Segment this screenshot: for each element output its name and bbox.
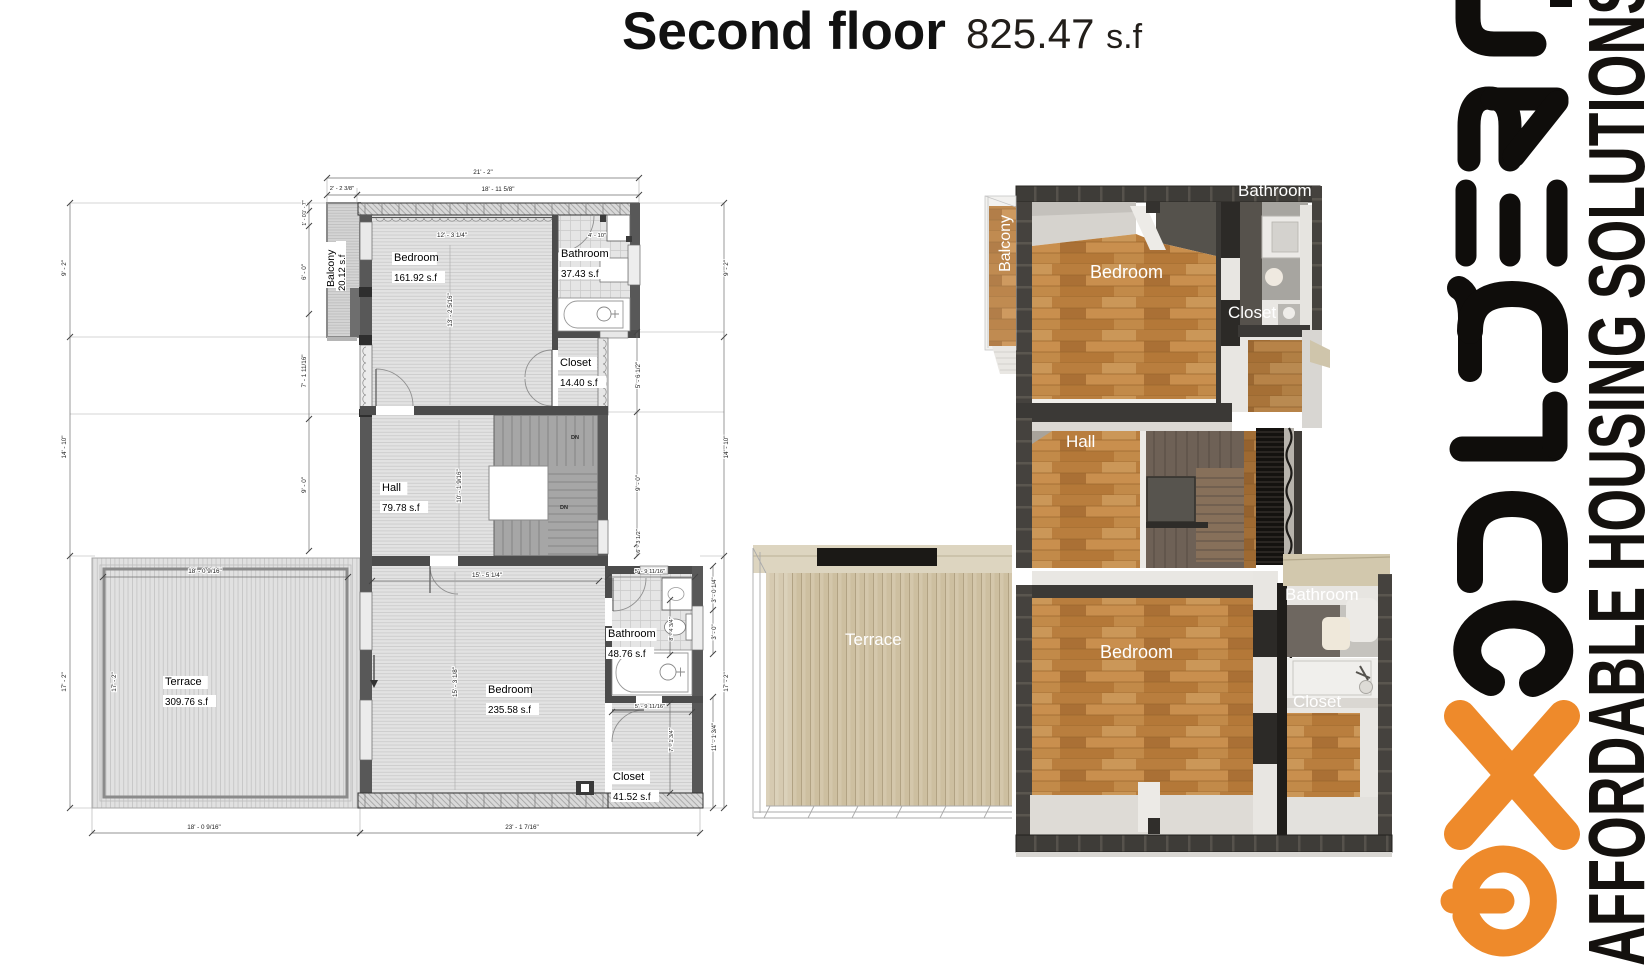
svg-text:Closet: Closet bbox=[560, 357, 591, 369]
svg-text:2' - 2 3/8": 2' - 2 3/8" bbox=[330, 186, 354, 192]
svg-text:10' - 1 9/16": 10' - 1 9/16" bbox=[456, 469, 463, 503]
svg-text:Terrace: Terrace bbox=[165, 676, 202, 688]
svg-text:14' - 10": 14' - 10" bbox=[723, 435, 730, 458]
svg-text:AFFORDABLE HOUSING SOLUTIONS: AFFORDABLE HOUSING SOLUTIONS bbox=[1572, 0, 1646, 966]
svg-text:15' - 5 1/4": 15' - 5 1/4" bbox=[472, 572, 502, 579]
svg-text:6' - 3 1/2": 6' - 3 1/2" bbox=[636, 529, 642, 553]
svg-text:9' - 0": 9' - 0" bbox=[635, 475, 642, 491]
svg-text:Hall: Hall bbox=[1066, 432, 1095, 451]
svg-text:Bedroom: Bedroom bbox=[1100, 642, 1173, 662]
svg-text:Bathroom: Bathroom bbox=[1238, 181, 1312, 200]
svg-text:Balcony: Balcony bbox=[997, 215, 1014, 272]
svg-text:8' - 4 3/4": 8' - 4 3/4" bbox=[669, 617, 675, 641]
svg-text:Bathroom: Bathroom bbox=[608, 628, 656, 640]
svg-text:9' - 0": 9' - 0" bbox=[301, 477, 308, 493]
svg-text:DN: DN bbox=[560, 505, 568, 511]
svg-text:Terrace: Terrace bbox=[845, 630, 902, 649]
svg-text:18' - 0 9/16": 18' - 0 9/16" bbox=[188, 568, 222, 575]
svg-text:0' - 7": 0' - 7" bbox=[302, 200, 308, 213]
svg-text:1' - 0": 1' - 0" bbox=[302, 212, 308, 225]
svg-text:Second floor: Second floor bbox=[622, 2, 946, 61]
svg-text:7' - 1 11/16": 7' - 1 11/16" bbox=[301, 354, 308, 387]
svg-text:9' - 2": 9' - 2" bbox=[723, 260, 730, 276]
svg-text:18' - 11 5/8": 18' - 11 5/8" bbox=[481, 186, 514, 193]
svg-text:Closet: Closet bbox=[613, 771, 644, 783]
svg-text:41.52 s.f: 41.52 s.f bbox=[613, 792, 651, 803]
svg-text:17' - 2": 17' - 2" bbox=[723, 672, 730, 692]
svg-text:5' - 9 11/16": 5' - 9 11/16" bbox=[635, 704, 665, 710]
svg-text:3' - 0 1/4": 3' - 0 1/4" bbox=[712, 577, 718, 602]
svg-text:Hall: Hall bbox=[382, 482, 401, 494]
svg-text:9' - 2": 9' - 2" bbox=[61, 260, 68, 276]
svg-text:Bedroom: Bedroom bbox=[1090, 262, 1163, 282]
svg-text:6' - 0": 6' - 0" bbox=[301, 264, 308, 280]
svg-text:Balcony: Balcony bbox=[325, 249, 337, 287]
svg-text:5' - 6 1/2": 5' - 6 1/2" bbox=[635, 362, 642, 389]
svg-text:37.43 s.f: 37.43 s.f bbox=[561, 269, 599, 280]
svg-text:Bathroom: Bathroom bbox=[561, 248, 609, 260]
svg-text:14.40 s.f: 14.40 s.f bbox=[560, 378, 598, 389]
svg-text:Bathroom: Bathroom bbox=[1285, 585, 1359, 604]
svg-text:12' - 3 1/4": 12' - 3 1/4" bbox=[437, 232, 467, 239]
svg-text:235.58 s.f: 235.58 s.f bbox=[488, 705, 531, 716]
svg-text:161.92 s.f: 161.92 s.f bbox=[394, 273, 437, 284]
svg-text:5' - 9 11/16": 5' - 9 11/16" bbox=[635, 569, 665, 575]
svg-text:DN: DN bbox=[571, 435, 579, 441]
svg-text:11' - 1 3/4": 11' - 1 3/4" bbox=[712, 723, 718, 751]
svg-text:17' - 2": 17' - 2" bbox=[61, 672, 68, 692]
svg-text:3' - 0": 3' - 0" bbox=[712, 624, 718, 639]
svg-text:20.12 s.f: 20.12 s.f bbox=[337, 254, 348, 291]
svg-text:Bedroom: Bedroom bbox=[488, 684, 533, 696]
svg-text:21' - 2": 21' - 2" bbox=[473, 169, 493, 176]
svg-text:79.78 s.f: 79.78 s.f bbox=[382, 503, 420, 514]
svg-text:23' - 1 7/16": 23' - 1 7/16" bbox=[505, 824, 539, 831]
svg-text:Closet: Closet bbox=[1228, 303, 1276, 322]
svg-text:18' - 0 9/16": 18' - 0 9/16" bbox=[187, 824, 221, 831]
svg-text:15' - 3 1/8": 15' - 3 1/8" bbox=[452, 667, 459, 697]
svg-text:13' - 2 5/16": 13' - 2 5/16" bbox=[447, 293, 454, 327]
svg-text:Closet: Closet bbox=[1293, 692, 1341, 711]
svg-text:Bedroom: Bedroom bbox=[394, 252, 439, 264]
svg-text:4' - 10": 4' - 10" bbox=[588, 233, 606, 239]
svg-text:48.76 s.f: 48.76 s.f bbox=[608, 649, 646, 660]
svg-text:309.76 s.f: 309.76 s.f bbox=[165, 697, 208, 708]
svg-text:14' - 10": 14' - 10" bbox=[61, 435, 68, 458]
svg-text:825.47 s.f: 825.47 s.f bbox=[966, 10, 1143, 57]
svg-text:7' - 1 3/4": 7' - 1 3/4" bbox=[669, 728, 675, 752]
svg-text:17' - 2": 17' - 2" bbox=[111, 672, 118, 692]
